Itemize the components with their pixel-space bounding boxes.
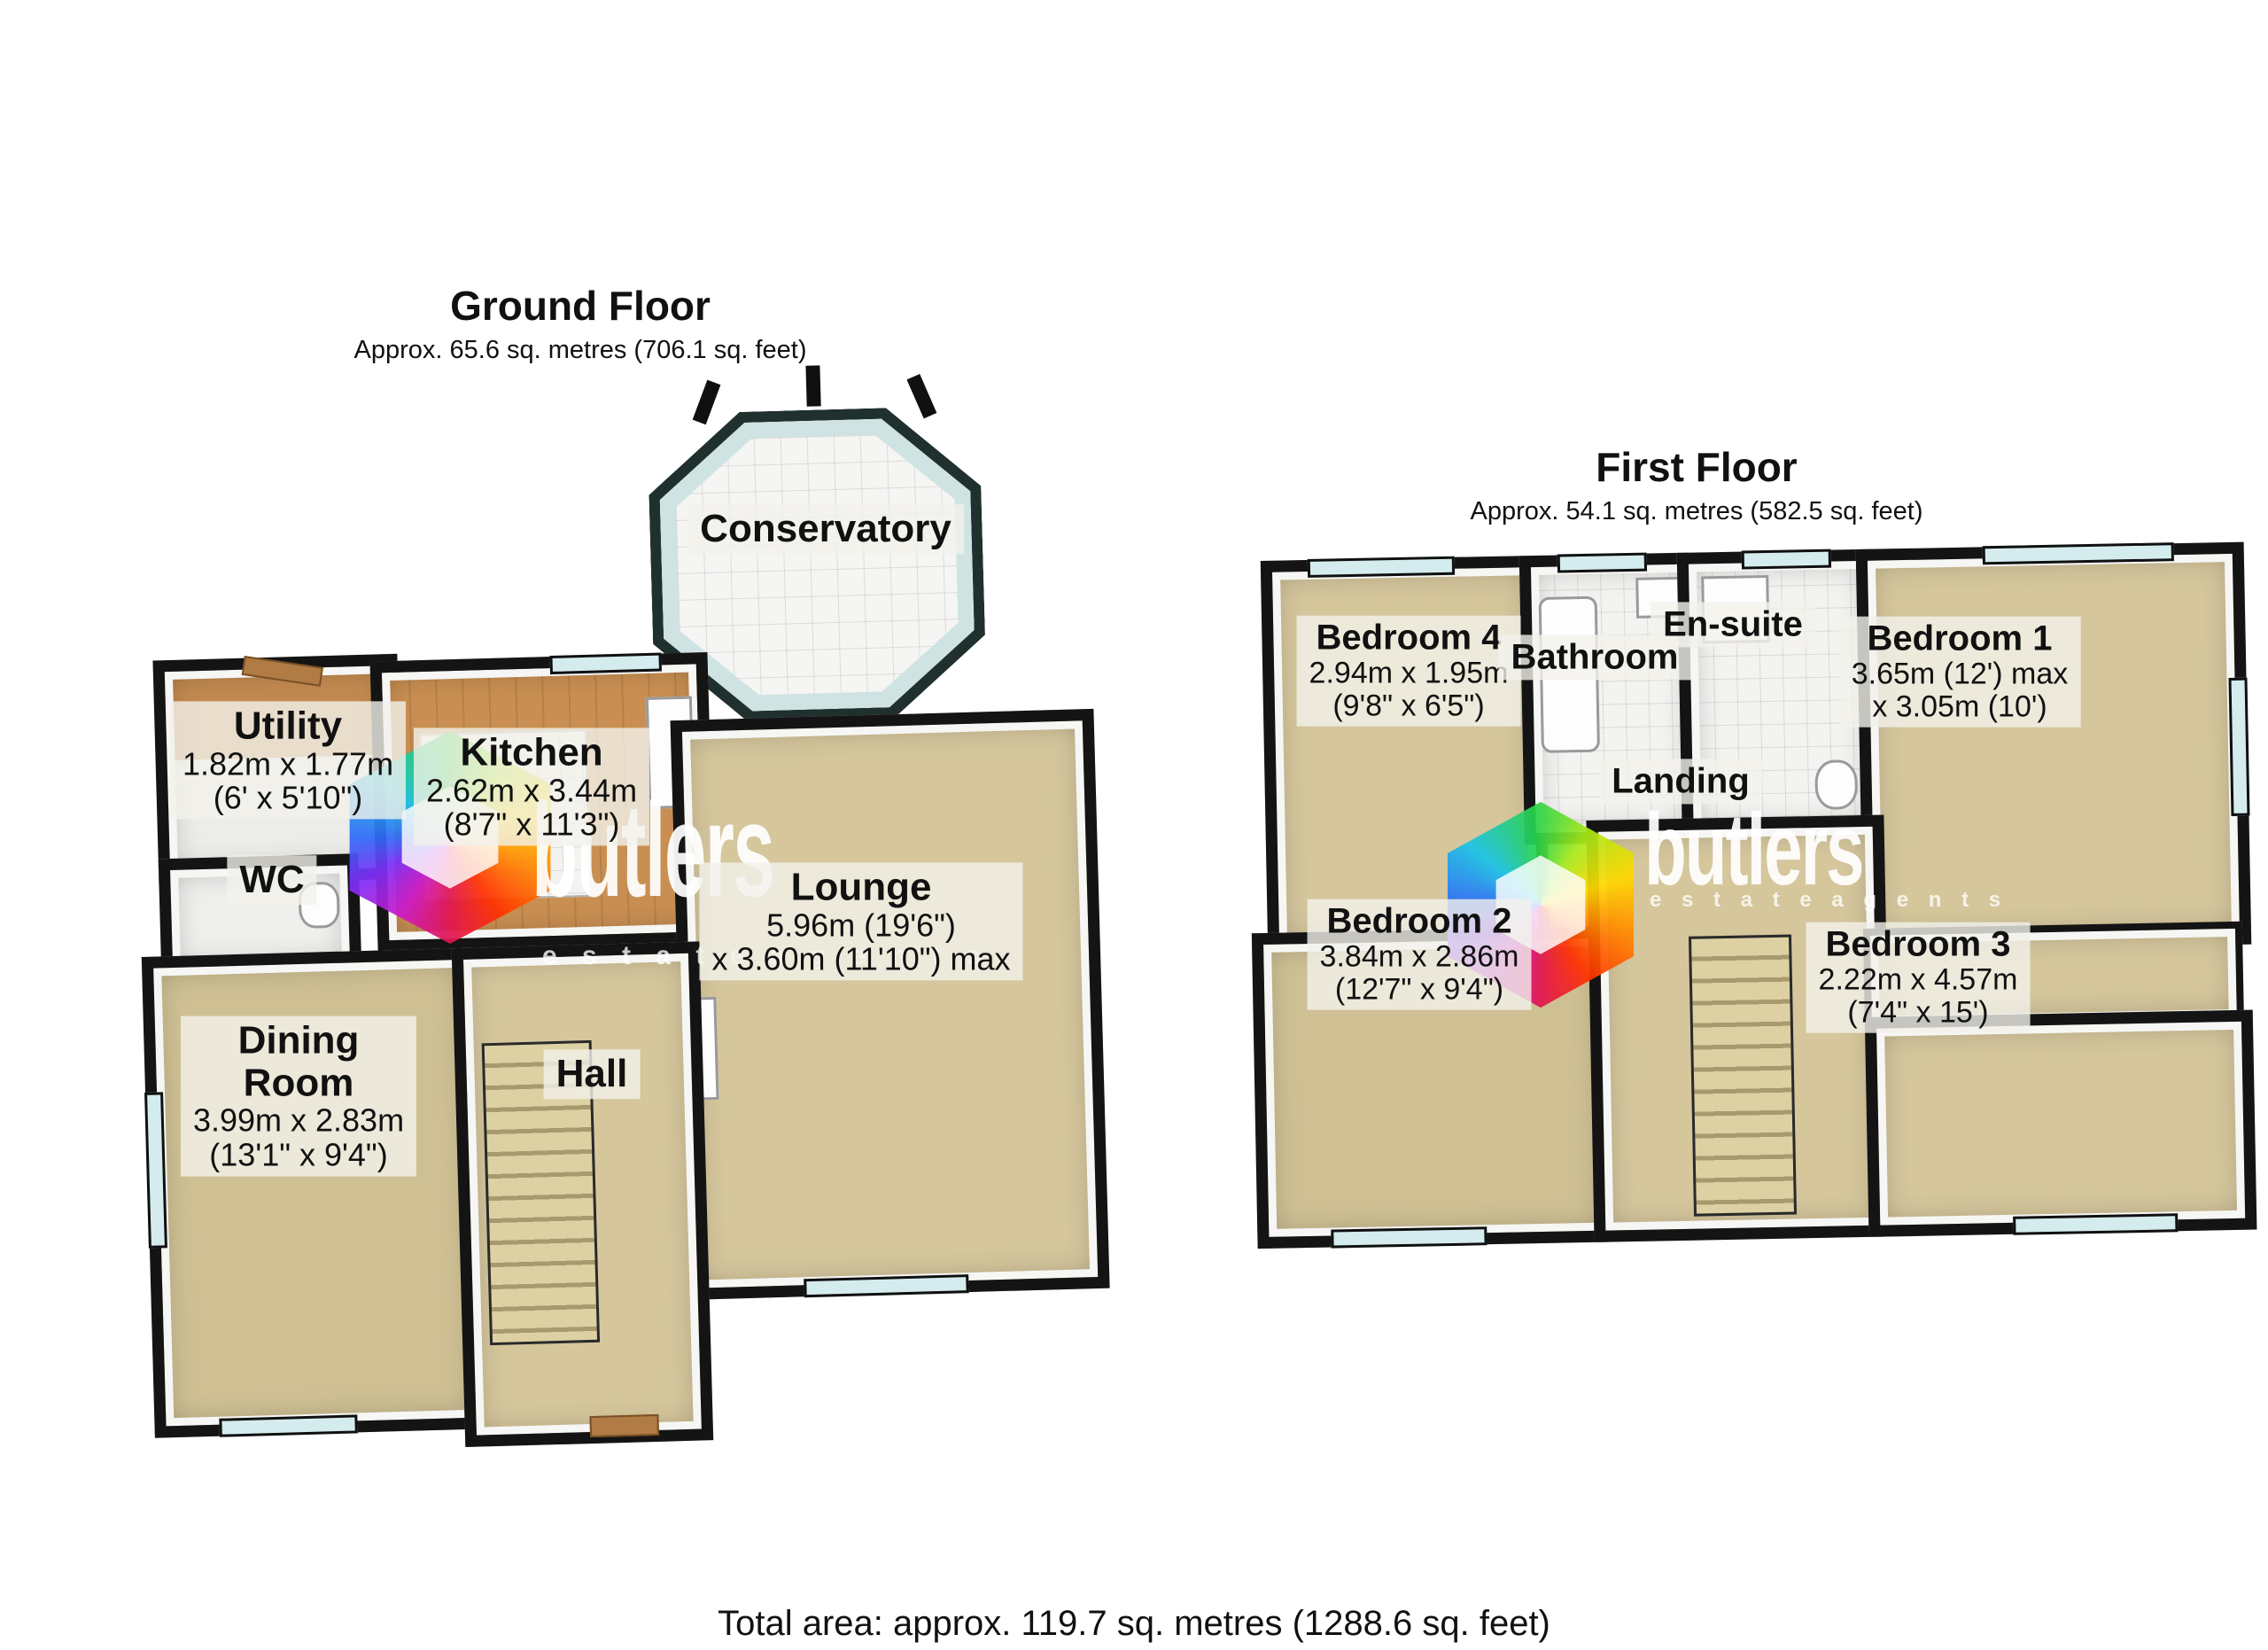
window [144,1092,167,1249]
room-label-dining: Dining Room 3.99m x 2.83m (13'1" x 9'4") [181,1016,416,1177]
window [2228,678,2249,816]
room-hall [452,941,714,1447]
window [1308,556,1455,578]
conservatory-floor [674,432,960,697]
room-label-landing: Landing [1599,759,1762,804]
window [549,652,662,674]
landing-staircase [1689,935,1797,1217]
room-label-utility: Utility 1.82m x 1.77m (6' x 5'10") [170,701,406,819]
window [1742,549,1831,570]
watermark-tagline-text: e s t a t e a g e n t s [1650,888,2008,913]
window [1557,553,1647,573]
window [219,1414,358,1436]
ground-floor-subtitle: Approx. 65.6 sq. metres (706.1 sq. feet) [292,336,868,365]
first-floor-title: First Floor [1453,445,1940,490]
watermark-butlers-text: butlers [1644,805,1862,897]
window [804,1274,969,1297]
conservatory-post [906,374,936,418]
window [1331,1226,1487,1248]
room-label-lounge: Lounge 5.96m (19'6") x 3.60m (11'10") ma… [699,862,1022,980]
room-label-conservatory: Conservatory [687,504,964,554]
first-floor-subtitle: Approx. 54.1 sq. metres (582.5 sq. feet) [1453,497,1940,526]
room-label-hall: Hall [544,1049,641,1099]
ground-floor-header: Ground Floor Approx. 65.6 sq. metres (70… [292,284,868,365]
window [2013,1213,2178,1235]
room-label-bedroom3: Bedroom 3 2.22m x 4.57m (7'4" x 15') [1806,922,2031,1033]
front-door [589,1414,659,1437]
room-label-wc: WC [227,855,316,905]
utility-door [242,656,323,687]
room-label-bedroom1: Bedroom 1 3.65m (12') max x 3.05m (10') [1839,617,2081,728]
ground-floor-title: Ground Floor [292,284,868,329]
first-floor-header: First Floor Approx. 54.1 sq. metres (582… [1453,445,1940,526]
room-label-bedroom2: Bedroom 2 3.84m x 2.86m (12'7" x 9'4") [1308,899,1532,1010]
room-bedroom3 [1865,1010,2257,1237]
room-label-bedroom4: Bedroom 4 2.94m x 1.95m (9'8" x 6'5") [1297,616,1521,727]
conservatory-post [693,380,721,425]
window [1983,542,2174,564]
room-label-ensuite: En-suite [1651,602,1815,647]
total-area-text: Total area: approx. 119.7 sq. metres (12… [0,1604,2268,1644]
floorplan-canvas: Ground Floor Approx. 65.6 sq. metres (70… [0,0,2268,1650]
room-label-kitchen: Kitchen 2.62m x 3.44m (8'7" x 11'3") [414,728,649,845]
conservatory-post [805,365,820,406]
